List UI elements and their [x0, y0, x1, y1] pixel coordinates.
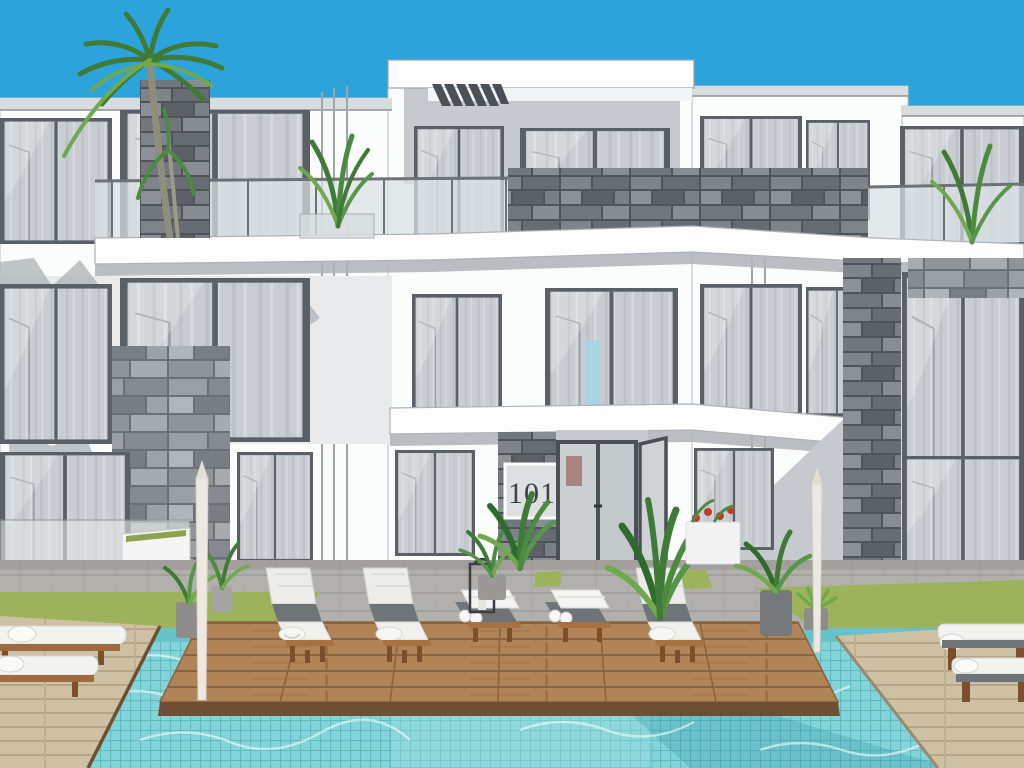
deck-front-face: [158, 702, 840, 716]
grass-strip-door-left: [534, 571, 562, 587]
window-top-left-a: [2, 120, 110, 242]
roof-edge-far-right: [902, 106, 1024, 116]
closed-parasol-left: [196, 460, 208, 700]
roof-edge-right: [692, 86, 908, 96]
window-mid-left-a: [2, 286, 110, 441]
window-mid-center-b: [548, 290, 676, 416]
window-blue-reflection: [585, 340, 600, 412]
window-mid-far-right: [904, 275, 1021, 477]
unit-number-plaque: 101: [505, 464, 559, 518]
window-ground-far-right: [904, 458, 1021, 573]
stone-column-right: [843, 258, 901, 598]
stone-band-far-right: [908, 258, 1024, 298]
architectural-render: 101: [0, 0, 1024, 768]
window-ground-center-a: [397, 452, 474, 555]
window-ground-left-b: [239, 454, 312, 561]
center-roof-fascia: [388, 60, 694, 88]
pool-deck: [158, 622, 840, 716]
closed-parasol-right: [812, 468, 822, 652]
window-mid-center-a: [414, 296, 500, 420]
window-mid-right-a: [702, 286, 800, 414]
